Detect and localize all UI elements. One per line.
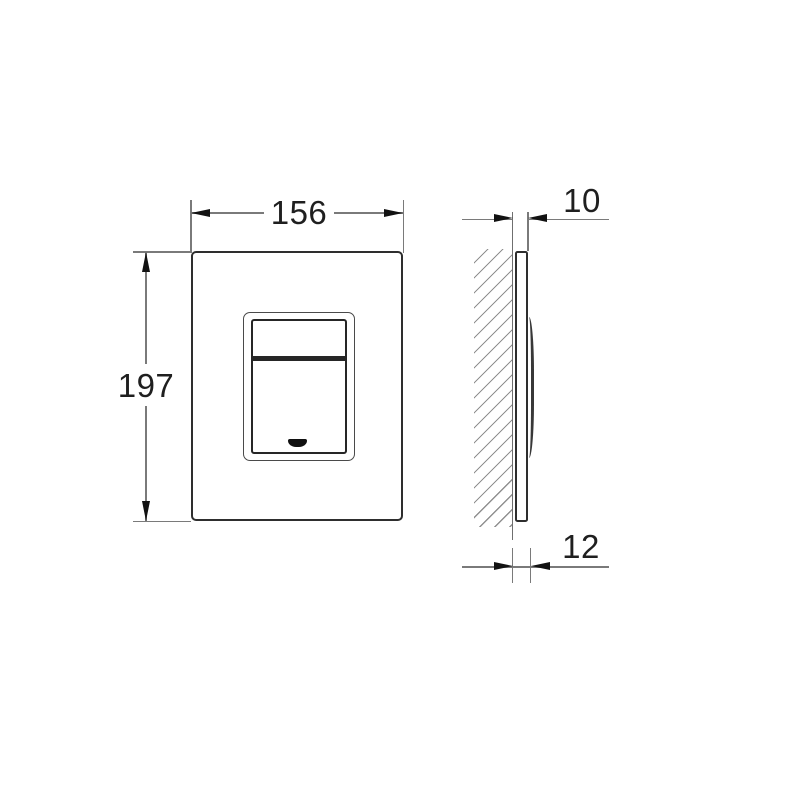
wall-hatching [474,249,512,527]
width-dimension-label: 156 [264,196,334,229]
width-arrow-right-icon [384,209,403,217]
button-split-line [252,356,346,362]
height-dimension-label: 197 [111,369,181,402]
thickness-dimension-label: 10 [561,184,603,217]
thickness-arrow-left-icon [494,214,513,222]
height-arrow-down-icon [142,501,150,521]
depth-arrow-left-icon [494,562,513,570]
wall-face-line [512,212,514,540]
depth-arrow-right-icon [531,562,550,570]
button-profile-bulge [526,317,535,458]
thickness-arrow-right-icon [528,214,547,222]
depth-dimension-label: 12 [560,530,602,563]
button-grip-notch [288,439,307,447]
width-arrow-left-icon [191,209,210,217]
height-arrow-up-icon [142,252,150,272]
flush-button-face [251,319,347,454]
technical-drawing-canvas: 156 197 10 12 [0,0,800,800]
